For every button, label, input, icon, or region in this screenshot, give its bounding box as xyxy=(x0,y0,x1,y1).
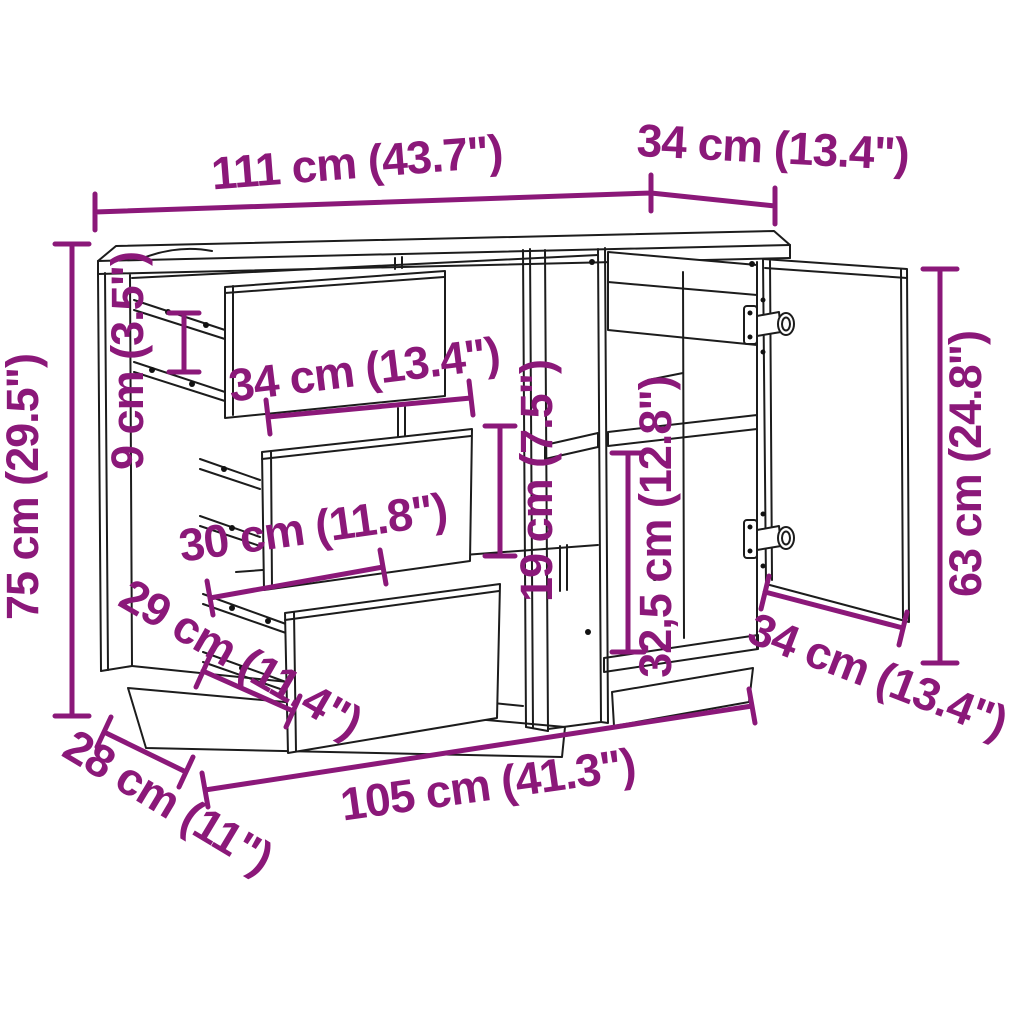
dim-total-height-label: 75 cm (29.5") xyxy=(0,354,48,620)
dim-drawer-side-height: 9 cm (3.5") xyxy=(102,252,199,470)
dim-compartment-height: 32,5 cm (12.8") xyxy=(612,376,681,678)
dim-middle-shelf-gap-label: 19 cm (7.5") xyxy=(511,360,562,602)
dim-compartment-height-label: 32,5 cm (12.8") xyxy=(630,376,681,678)
dim-door-height: 63 cm (24.8") xyxy=(923,269,991,663)
dim-base-depth: 28 cm (11") xyxy=(55,717,282,884)
dim-top-depth-label: 34 cm (13.4") xyxy=(636,114,911,180)
dim-bottom-width-label: 105 cm (41.3") xyxy=(337,738,638,831)
dim-door-height-label: 63 cm (24.8") xyxy=(940,331,991,597)
middle-column-wall xyxy=(598,248,608,723)
dimension-diagram-page: 111 cm (43.7") 34 cm (13.4") 75 cm (29.5… xyxy=(0,0,1024,1024)
dim-drawer-side-height-label: 9 cm (3.5") xyxy=(102,252,153,470)
sideboard-dimension-diagram: 111 cm (43.7") 34 cm (13.4") 75 cm (29.5… xyxy=(0,0,1024,1024)
dim-middle-shelf-gap: 19 cm (7.5") xyxy=(485,360,562,602)
dim-base-depth-label: 28 cm (11") xyxy=(55,719,282,884)
dim-total-width-top-label: 111 cm (43.7") xyxy=(209,125,504,200)
dim-total-width-top: 111 cm (43.7") xyxy=(95,125,651,230)
dim-top-depth: 34 cm (13.4") xyxy=(636,114,911,224)
dim-total-height: 75 cm (29.5") xyxy=(0,244,89,716)
